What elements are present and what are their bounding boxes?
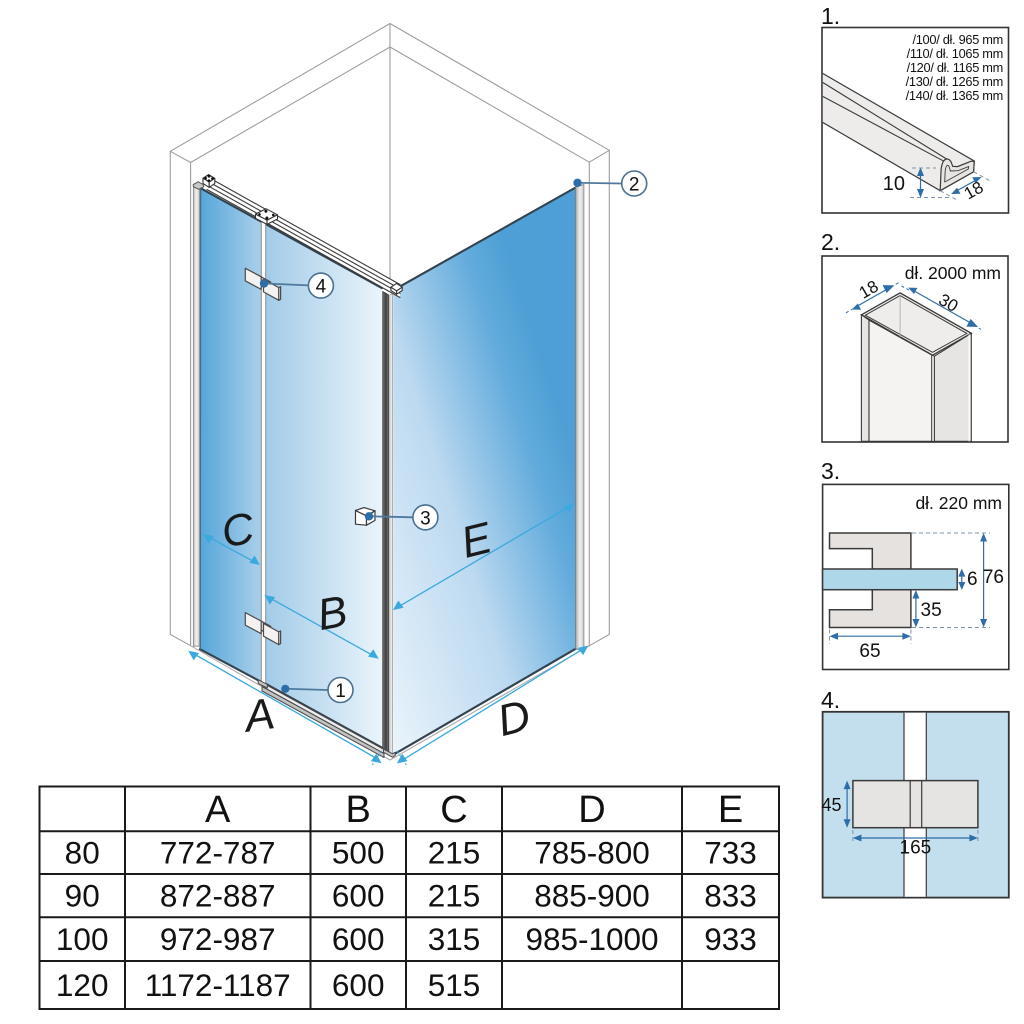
svg-text:933: 933 — [704, 921, 757, 957]
svg-text:E: E — [718, 789, 743, 831]
svg-text:120: 120 — [56, 967, 109, 1003]
svg-text:165: 165 — [900, 838, 932, 859]
svg-text:600: 600 — [332, 967, 385, 1003]
svg-text:215: 215 — [428, 835, 481, 871]
svg-text:3.: 3. — [821, 458, 840, 484]
svg-text:D: D — [578, 789, 605, 831]
svg-text:315: 315 — [428, 921, 481, 957]
svg-text:45: 45 — [821, 795, 841, 815]
svg-text:1: 1 — [335, 681, 346, 702]
svg-text:215: 215 — [428, 878, 481, 914]
svg-text:80: 80 — [65, 835, 100, 871]
svg-text:90: 90 — [65, 878, 100, 914]
svg-text:6: 6 — [967, 569, 978, 590]
svg-text:985-1000: 985-1000 — [525, 921, 658, 957]
svg-text:100: 100 — [56, 921, 109, 957]
svg-text:733: 733 — [704, 835, 757, 871]
svg-text:dł. 2000 mm: dł. 2000 mm — [905, 263, 1001, 283]
svg-text:B: B — [346, 789, 371, 831]
svg-text:/100/ dł. 965 mm: /100/ dł. 965 mm — [912, 32, 1003, 47]
svg-text:600: 600 — [332, 921, 385, 957]
svg-text:972-987: 972-987 — [160, 921, 276, 957]
svg-text:600: 600 — [332, 878, 385, 914]
svg-text:C: C — [440, 789, 467, 831]
svg-text:35: 35 — [921, 600, 942, 621]
svg-text:2.: 2. — [821, 229, 840, 255]
svg-text:785-800: 785-800 — [534, 835, 650, 871]
svg-text:833: 833 — [704, 878, 757, 914]
svg-text:1172-1187: 1172-1187 — [145, 967, 291, 1003]
svg-text:885-900: 885-900 — [534, 878, 650, 914]
svg-text:/110/ dł. 1065 mm: /110/ dł. 1065 mm — [907, 46, 1003, 61]
svg-text:A: A — [205, 789, 231, 831]
svg-text:2: 2 — [629, 175, 640, 196]
svg-text:10: 10 — [883, 173, 905, 195]
svg-text:/120/ dł. 1165 mm: /120/ dł. 1165 mm — [907, 60, 1003, 75]
svg-text:4: 4 — [316, 277, 327, 298]
svg-text:515: 515 — [428, 967, 481, 1003]
svg-text:500: 500 — [332, 835, 385, 871]
svg-text:4.: 4. — [821, 687, 840, 713]
svg-text:76: 76 — [983, 567, 1004, 588]
svg-text:/140/ dł. 1365 mm: /140/ dł. 1365 mm — [906, 88, 1003, 103]
svg-text:1.: 1. — [821, 3, 840, 29]
svg-text:772-787: 772-787 — [160, 835, 276, 871]
svg-text:872-887: 872-887 — [160, 878, 276, 914]
svg-text:/130/ dł. 1265 mm: /130/ dł. 1265 mm — [906, 74, 1003, 89]
svg-text:3: 3 — [420, 508, 431, 529]
svg-text:65: 65 — [859, 641, 880, 662]
svg-text:dł. 220 mm: dł. 220 mm — [915, 493, 1002, 513]
